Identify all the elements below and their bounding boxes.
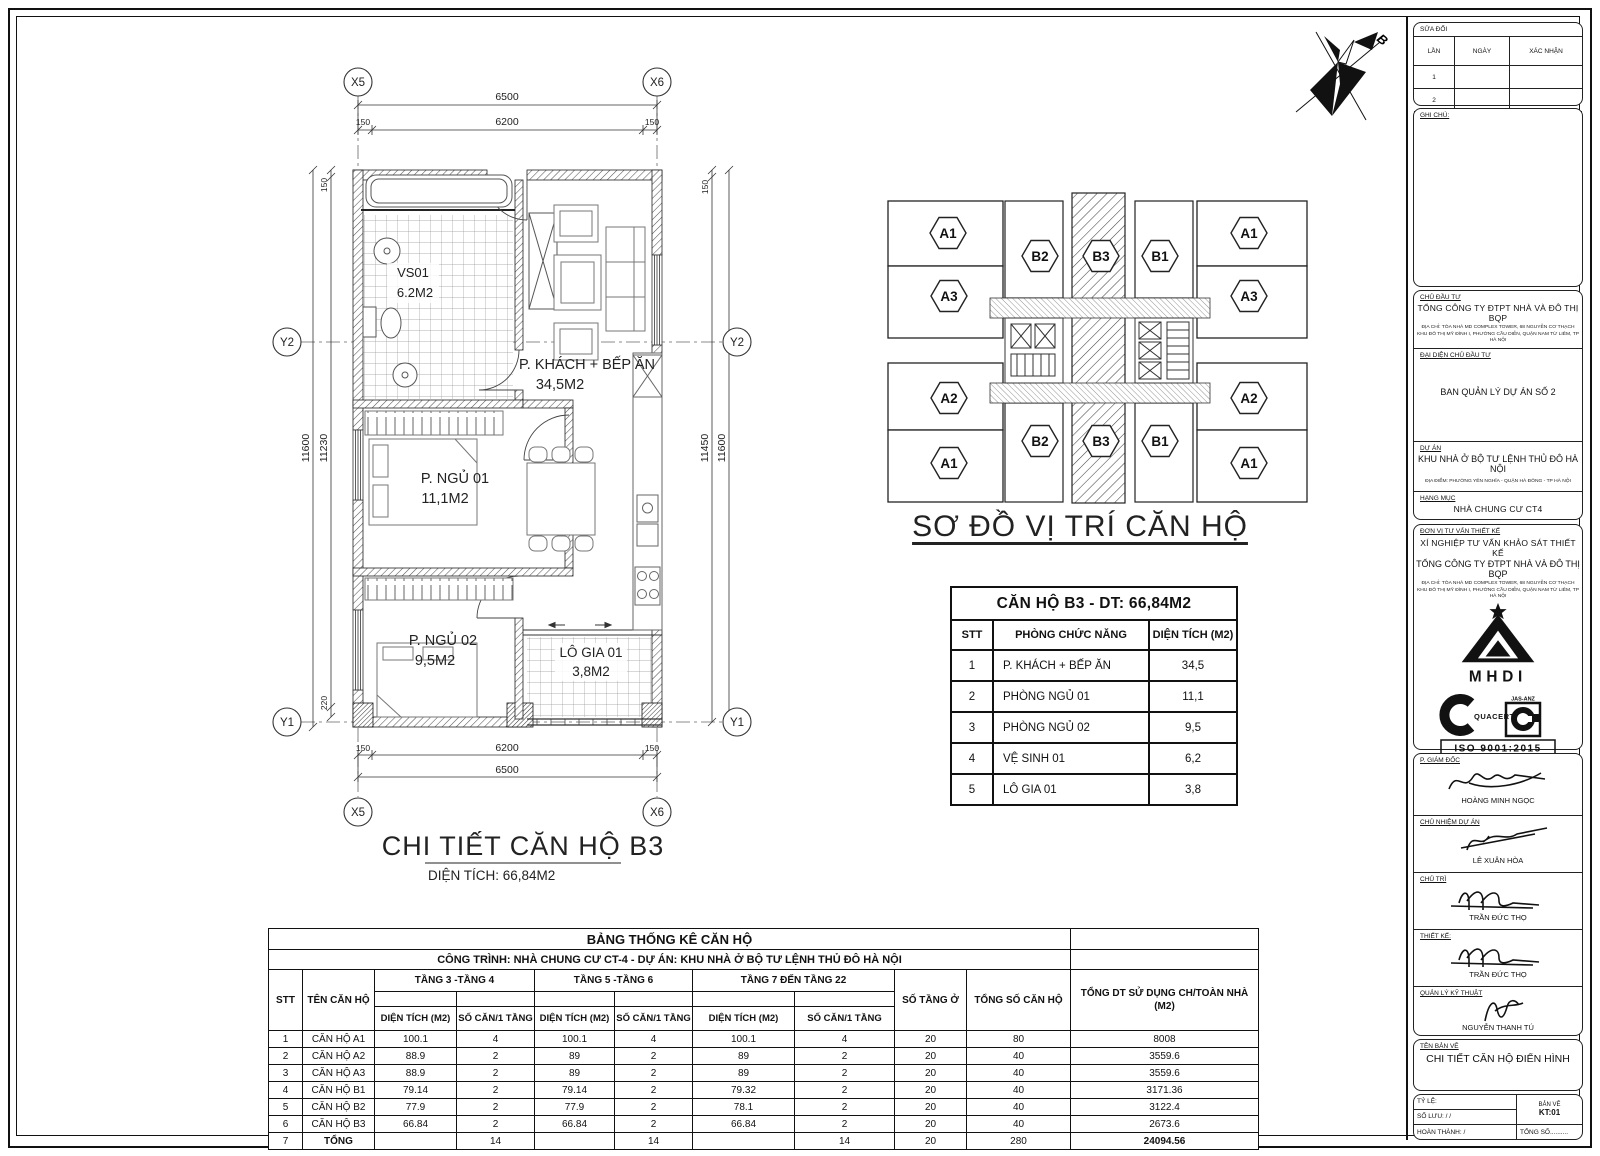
investor-address-2: KHU ĐÔ THỊ MỸ ĐÌNH I, PHƯỜNG CẦU DIỄN, Q… [1414, 332, 1582, 345]
room-area-bed1: 11,1M2 [421, 491, 468, 507]
group-floor-5-6: TẦNG 5 -TẦNG 6 [535, 970, 693, 992]
badge-b3-top: B3 [1092, 249, 1110, 264]
col-units-3: SỐ CĂN/1 TẦNG [795, 1007, 895, 1031]
spacer-cell [375, 992, 457, 1007]
designer-address-2: KHU ĐÔ THỊ MỸ ĐÌNH I, PHƯỜNG CẦU DIỄN, Q… [1414, 588, 1582, 601]
table-row: 5LÔ GIA 013,8 [951, 774, 1237, 805]
dim-bottom-right-150: 150 [645, 743, 659, 753]
item-section: HẠNG MỤC NHÀ CHUNG CƯ CT4 [1414, 492, 1582, 522]
designer-line2: TỔNG CÔNG TY ĐTPT NHÀ VÀ ĐÔ THỊ BQP [1414, 559, 1582, 579]
table-cell: 2 [457, 1048, 535, 1065]
table-cell: 2 [457, 1082, 535, 1099]
table-cell [375, 1133, 457, 1150]
table-cell: 5 [269, 1099, 303, 1116]
table-cell: 2 [795, 1082, 895, 1099]
table-cell: 9,5 [1149, 712, 1237, 743]
badge-a1-tl: A1 [939, 226, 957, 241]
project-name: KHU NHÀ Ở BỘ TƯ LỆNH THỦ ĐÔ HÀ NỘI [1414, 454, 1582, 474]
lead-label: CHỦ TRÌ [1414, 873, 1582, 883]
col-area-1: DIỆN TÍCH (M2) [375, 1007, 457, 1031]
table-cell: 89 [535, 1065, 615, 1082]
table-row: 2PHÒNG NGỦ 0111,1 [951, 681, 1237, 712]
north-arrow-icon: B [1288, 20, 1388, 128]
table-cell: CĂN HỘ A3 [303, 1065, 375, 1082]
table-cell: 80 [967, 1031, 1071, 1048]
table-cell: 3171.36 [1071, 1082, 1259, 1099]
table-cell: CĂN HỘ B3 [303, 1116, 375, 1133]
dim-bottom-left-150: 150 [356, 743, 370, 753]
unit-table-title: CĂN HỘ B3 - DT: 66,84M2 [951, 587, 1237, 620]
rev-row-1: 1 [1414, 66, 1455, 89]
drawing-name: CHI TIẾT CĂN HỘ ĐIỂN HÌNH [1414, 1053, 1582, 1065]
table-cell: P. KHÁCH + BẾP ĂN [993, 650, 1149, 681]
floor-plan-subtitle: DIỆN TÍCH: 66,84M2 [428, 868, 555, 883]
dim-left-outer: 11600 [300, 434, 312, 463]
badge-b3-bottom: B3 [1092, 434, 1110, 449]
signature-section-design: THIẾT KẾ: TRẦN ĐỨC THỌ [1414, 930, 1582, 987]
badge-b2-bottom: B2 [1031, 434, 1048, 449]
unit-col-area: DIỆN TÍCH (M2) [1149, 620, 1237, 650]
dim-top-inner: 6200 [495, 116, 519, 128]
dim-top-overall: 6500 [495, 91, 519, 103]
table-cell: 2 [615, 1082, 693, 1099]
project-section: DỰ ÁN KHU NHÀ Ở BỘ TƯ LỆNH THỦ ĐÔ HÀ NỘI… [1414, 442, 1582, 492]
table-cell: 2 [457, 1116, 535, 1133]
table-row: 4CĂN HỘ B179.14279.14279.32220403171.36 [269, 1082, 1259, 1099]
dining-set [527, 447, 595, 551]
table-row: 3PHÒNG NGỦ 029,5 [951, 712, 1237, 743]
room-label-bed1: P. NGỦ 01 [421, 469, 489, 487]
signature-mark [1443, 997, 1553, 1023]
dim-right-150: 150 [700, 180, 710, 194]
scale-label: TỶ LỆ: [1414, 1095, 1517, 1109]
rev-cell [1510, 66, 1583, 89]
signature-section-director: P. GIÁM ĐỐC HOÀNG MINH NGỌC [1414, 754, 1582, 816]
table-cell: 34,5 [1149, 650, 1237, 681]
table-cell: 280 [967, 1133, 1071, 1150]
revision-label: SỬA ĐỔI [1414, 23, 1582, 33]
complete-label: HOÀN THÀNH: / [1414, 1125, 1517, 1139]
table-row: 6CĂN HỘ B366.84266.84266.84220402673.6 [269, 1116, 1259, 1133]
table-cell: 20 [895, 1065, 967, 1082]
badge-a2-right: A2 [1240, 391, 1257, 406]
room-label-bed2: P. NGỦ 02 [409, 631, 477, 649]
rev-col-ngay: NGÀY [1455, 37, 1510, 66]
table-cell: 14 [457, 1133, 535, 1150]
table-cell: 24094.56 [1071, 1133, 1259, 1150]
table-cell: 40 [967, 1065, 1071, 1082]
room-label-living: P. KHÁCH + BẾP ĂN [519, 356, 655, 373]
table-cell: 2 [795, 1065, 895, 1082]
investor-address-1: ĐỊA CHỈ: TÒA NHÀ MD COMPLEX TOWER, 68 NG… [1414, 325, 1582, 332]
table-cell: 2 [951, 681, 993, 712]
table-cell: 2673.6 [1071, 1116, 1259, 1133]
table-cell: CĂN HỘ B1 [303, 1082, 375, 1099]
table-cell [535, 1133, 615, 1150]
table-cell: CĂN HỘ A2 [303, 1048, 375, 1065]
table-row: 7TỔNG1414142028024094.56 [269, 1133, 1259, 1150]
table-cell: 4 [457, 1031, 535, 1048]
table-cell: 8008 [1071, 1031, 1259, 1048]
project-address: ĐỊA ĐIỂM: PHƯỜNG YÊN NGHĨA - QUẬN HÀ ĐÔN… [1414, 479, 1582, 486]
table-cell: 2 [269, 1048, 303, 1065]
signature-section-qa: QUẢN LÝ KỸ THUẬT NGUYỄN THANH TÚ [1414, 987, 1582, 1037]
table-cell: PHÒNG NGỦ 02 [993, 712, 1149, 743]
investor-name: TỔNG CÔNG TY ĐTPT NHÀ VÀ ĐÔ THỊ BQP [1414, 303, 1582, 323]
bedroom1-furniture [365, 411, 503, 525]
table-cell: 2 [795, 1116, 895, 1133]
grid-x6-bottom: X6 [650, 807, 664, 819]
director-label: P. GIÁM ĐỐC [1414, 754, 1582, 764]
table-cell: 2 [615, 1048, 693, 1065]
table-cell: 3 [269, 1065, 303, 1082]
group-floor-7-22: TẦNG 7 ĐẾN TẦNG 22 [693, 970, 895, 992]
table-cell: 66.84 [535, 1116, 615, 1133]
table-cell: CĂN HỘ B2 [303, 1099, 375, 1116]
table-cell: 40 [967, 1048, 1071, 1065]
badge-a3-left: A3 [940, 289, 958, 304]
dim-top-right-150: 150 [645, 117, 659, 127]
signatures-box: P. GIÁM ĐỐC HOÀNG MINH NGỌC CHỦ NHIỆM DỰ… [1413, 753, 1583, 1036]
table-cell: 2 [615, 1065, 693, 1082]
badge-a1-bl: A1 [940, 456, 958, 471]
dim-bottom-inner: 6200 [495, 742, 519, 754]
table-cell: 100.1 [535, 1031, 615, 1048]
kitchen-counter [633, 353, 662, 630]
spacer-cell [535, 992, 615, 1007]
grid-y2-left: Y2 [280, 337, 294, 349]
investor-section: CHỦ ĐẦU TƯ TỔNG CÔNG TY ĐTPT NHÀ VÀ ĐÔ T… [1414, 291, 1582, 349]
drawing-name-label: TÊN BẢN VẼ [1414, 1040, 1582, 1050]
room-label-vs01: VS01 [397, 265, 429, 280]
table-cell: LÔ GIA 01 [993, 774, 1149, 805]
col-name: TÊN CĂN HỘ [303, 970, 375, 1031]
table-cell: 20 [895, 1031, 967, 1048]
room-label-loggia: LÔ GIA 01 [559, 645, 622, 660]
table-cell: 6,2 [1149, 743, 1237, 774]
signature-mark [1443, 764, 1553, 796]
table-cell: VỆ SINH 01 [993, 743, 1149, 774]
table-cell: CĂN HỘ A1 [303, 1031, 375, 1048]
director-name: HOÀNG MINH NGỌC [1414, 796, 1582, 805]
parties-box: CHỦ ĐẦU TƯ TỔNG CÔNG TY ĐTPT NHÀ VÀ ĐÔ T… [1413, 290, 1583, 520]
stats-subtitle-spacer [1071, 950, 1259, 970]
table-cell: 20 [895, 1099, 967, 1116]
table-cell: 4 [795, 1031, 895, 1048]
mhdi-logo-text: MHDI [1469, 668, 1527, 685]
table-cell: TỔNG [303, 1133, 375, 1150]
table-cell: 5 [951, 774, 993, 805]
designer-address-1: ĐỊA CHỈ: TÒA NHÀ MD COMPLEX TOWER, 68 NG… [1414, 581, 1582, 588]
col-total-units: TỔNG SỐ CĂN HỘ [967, 970, 1071, 1031]
col-total-area: TỔNG DT SỬ DỤNG CH/TOÀN NHÀ (M2) [1071, 970, 1259, 1031]
lead-name: TRẦN ĐỨC THỌ [1414, 913, 1582, 922]
mhdi-logo: MHDI [1414, 601, 1582, 694]
table-cell: 79.14 [535, 1082, 615, 1099]
table-row: 1P. KHÁCH + BẾP ĂN34,5 [951, 650, 1237, 681]
designer-box: ĐƠN VỊ TƯ VẤN THIẾT KẾ XÍ NGHIỆP TƯ VẤN … [1413, 524, 1583, 750]
rev-cell [1455, 66, 1510, 89]
table-cell: 2 [795, 1048, 895, 1065]
revision-box: SỬA ĐỔI LẦN NGÀY XÁC NHẬN 1 2 [1413, 22, 1583, 106]
qa-name: NGUYỄN THANH TÚ [1414, 1023, 1582, 1032]
col-area-2: DIỆN TÍCH (M2) [535, 1007, 615, 1031]
grid-y1-right: Y1 [730, 717, 744, 729]
rev-col-xacnhan: XÁC NHẬN [1510, 37, 1583, 66]
stats-title: BẢNG THỐNG KÊ CĂN HỘ [269, 929, 1071, 950]
table-row: 1CĂN HỘ A1100.14100.14100.1420808008 [269, 1031, 1259, 1048]
grid-x5-bottom: X5 [351, 807, 365, 819]
table-cell: 2 [615, 1116, 693, 1133]
dim-top-left-150: 150 [356, 117, 370, 127]
pm-name: LÊ XUÂN HÒA [1414, 856, 1582, 865]
grid-y2-right: Y2 [730, 337, 744, 349]
table-cell: 1 [951, 650, 993, 681]
room-area-vs01: 6.2M2 [397, 285, 433, 300]
table-cell: 40 [967, 1099, 1071, 1116]
quacert-text: QUACERT [1474, 712, 1515, 721]
notes-box: GHI CHÚ: [1413, 108, 1583, 287]
table-cell: 7 [269, 1133, 303, 1150]
representative-name: BAN QUẢN LÝ DỰ ÁN SỐ 2 [1414, 387, 1582, 397]
table-cell: 20 [895, 1133, 967, 1150]
representative-label: ĐẠI DIỆN CHỦ ĐẦU TƯ [1414, 349, 1582, 359]
table-cell: 78.1 [693, 1099, 795, 1116]
sheet-number: KT:01 [1520, 1108, 1579, 1117]
designer-label: ĐƠN VỊ TƯ VẤN THIẾT KẾ [1414, 525, 1582, 535]
hall-closet [529, 213, 557, 309]
pm-label: CHỦ NHIỆM DỰ ÁN [1414, 816, 1582, 826]
table-cell: PHÒNG NGỦ 01 [993, 681, 1149, 712]
signature-mark [1443, 826, 1553, 856]
drawing-sheet: B [0, 0, 1600, 1156]
stats-table: BẢNG THỐNG KÊ CĂN HỘ CÔNG TRÌNH: NHÀ CHU… [268, 928, 1259, 1150]
table-cell: 3559.6 [1071, 1048, 1259, 1065]
badge-b2-top: B2 [1031, 249, 1048, 264]
unit-area-table: CĂN HỘ B3 - DT: 66,84M2 STT PHÒNG CHỨC N… [950, 586, 1238, 806]
col-total-area-line1: TỔNG DT SỬ DỤNG CH/TOÀN NHÀ [1081, 988, 1249, 999]
item-name: NHÀ CHUNG CƯ CT4 [1414, 504, 1582, 514]
table-cell: 2 [457, 1065, 535, 1082]
grid-x5-top: X5 [351, 77, 365, 89]
key-plan: A1 B2 B3 B1 A1 A3 A3 A2 A2 A1 B2 B3 B1 A… [855, 158, 1313, 510]
table-cell [693, 1133, 795, 1150]
title-block: SỬA ĐỔI LẦN NGÀY XÁC NHẬN 1 2 GHI CHÚ: C… [1406, 16, 1590, 1140]
unit-table-body: 1P. KHÁCH + BẾP ĂN34,52PHÒNG NGỦ 0111,13… [951, 650, 1237, 805]
group-floor-3-4: TẦNG 3 -TẦNG 4 [375, 970, 535, 992]
table-row: 4VỆ SINH 016,2 [951, 743, 1237, 774]
floor-plan-title: CHI TIẾT CĂN HỘ B3 [382, 830, 665, 861]
revision-table: LẦN NGÀY XÁC NHẬN 1 2 [1414, 36, 1582, 112]
floor-plan: VS01 6.2M2 P. KHÁCH + BẾP ĂN 34,5M2 P. N… [265, 55, 775, 887]
dim-left-220: 220 [319, 696, 329, 710]
grid-x6-top: X6 [650, 77, 664, 89]
col-area-3: DIỆN TÍCH (M2) [693, 1007, 795, 1031]
stats-title-spacer [1071, 929, 1259, 950]
col-units-2: SỐ CĂN/1 TẦNG [615, 1007, 693, 1031]
badge-b1-top: B1 [1151, 249, 1169, 264]
col-stt: STT [269, 970, 303, 1031]
stats-subtitle: CÔNG TRÌNH: NHÀ CHUNG CƯ CT-4 - DỰ ÁN: K… [269, 950, 1071, 970]
file-label: SỐ LƯU: / / [1414, 1109, 1517, 1124]
col-total-area-line2: (M2) [1154, 1001, 1175, 1012]
dim-right-outer: 11600 [716, 434, 728, 463]
table-cell: 89 [693, 1048, 795, 1065]
table-cell: 100.1 [375, 1031, 457, 1048]
design-name: TRẦN ĐỨC THỌ [1414, 970, 1582, 979]
total-sheets-label: TỔNG SỐ.......... [1517, 1125, 1583, 1139]
table-cell: 40 [967, 1082, 1071, 1099]
table-cell: 3122.4 [1071, 1099, 1259, 1116]
unit-col-room: PHÒNG CHỨC NĂNG [993, 620, 1149, 650]
table-cell: 4 [269, 1082, 303, 1099]
table-cell: 4 [615, 1031, 693, 1048]
table-cell: 11,1 [1149, 681, 1237, 712]
table-cell: 6 [269, 1116, 303, 1133]
table-cell: 88.9 [375, 1065, 457, 1082]
table-cell: 1 [269, 1031, 303, 1048]
project-label: DỰ ÁN [1414, 442, 1582, 452]
unit-col-stt: STT [951, 620, 993, 650]
table-cell: 3 [951, 712, 993, 743]
table-cell: 2 [457, 1099, 535, 1116]
table-cell: 20 [895, 1048, 967, 1065]
spacer-cell [795, 992, 895, 1007]
dim-right-inner: 11450 [699, 434, 711, 463]
quacert-logo: QUACERT JAS-ANZ ISO 9001:2015 [1414, 694, 1582, 761]
table-row: 3CĂN HỘ A388.9289289220403559.6 [269, 1065, 1259, 1082]
table-cell: 3559.6 [1071, 1065, 1259, 1082]
table-cell: 2 [795, 1099, 895, 1116]
signature-mark [1443, 883, 1553, 913]
table-cell: 100.1 [693, 1031, 795, 1048]
badge-a1-br: A1 [1240, 456, 1258, 471]
table-cell: 79.32 [693, 1082, 795, 1099]
jas-anz-text: JAS-ANZ [1511, 696, 1535, 702]
item-label: HẠNG MỤC [1414, 492, 1582, 502]
representative-section: ĐẠI DIỆN CHỦ ĐẦU TƯ BAN QUẢN LÝ DỰ ÁN SỐ… [1414, 349, 1582, 442]
dim-bottom-overall: 6500 [495, 764, 519, 776]
grid-y1-left: Y1 [280, 717, 294, 729]
signature-section-pm: CHỦ NHIỆM DỰ ÁN LÊ XUÂN HÒA [1414, 816, 1582, 873]
investor-label: CHỦ ĐẦU TƯ [1414, 291, 1582, 301]
col-units-1: SỐ CĂN/1 TẦNG [457, 1007, 535, 1031]
table-cell: 89 [693, 1065, 795, 1082]
signature-mark [1443, 940, 1553, 970]
qa-label: QUẢN LÝ KỸ THUẬT [1414, 987, 1582, 997]
room-area-loggia: 3,8M2 [572, 664, 610, 679]
table-cell: 77.9 [375, 1099, 457, 1116]
table-cell: 14 [795, 1133, 895, 1150]
badge-b1-bottom: B1 [1151, 434, 1169, 449]
table-cell: 20 [895, 1082, 967, 1099]
table-cell: 20 [895, 1116, 967, 1133]
key-plan-title: SƠ ĐỒ VỊ TRÍ CĂN HỘ [860, 510, 1300, 544]
living-room-furniture [554, 205, 645, 360]
spacer-cell [615, 992, 693, 1007]
notes-label: GHI CHÚ: [1414, 109, 1582, 119]
table-cell: 77.9 [535, 1099, 615, 1116]
dim-left-inner: 11230 [318, 434, 330, 463]
table-row: 5CĂN HỘ B277.9277.9278.1220403122.4 [269, 1099, 1259, 1116]
badge-a2-left: A2 [940, 391, 957, 406]
room-area-bed2: 9,5M2 [415, 653, 455, 669]
table-cell: 89 [535, 1048, 615, 1065]
dim-left-150: 150 [319, 178, 329, 192]
table-cell: 79.14 [375, 1082, 457, 1099]
table-cell: 40 [967, 1116, 1071, 1133]
info-grid: TỶ LỆ: BẢN VẼ KT:01 SỐ LƯU: / / HOÀN THÀ… [1413, 1094, 1583, 1140]
drawing-name-box: TÊN BẢN VẼ CHI TIẾT CĂN HỘ ĐIỂN HÌNH [1413, 1039, 1583, 1091]
spacer-cell [693, 992, 795, 1007]
signature-section-lead: CHỦ TRÌ TRẦN ĐỨC THỌ [1414, 873, 1582, 930]
table-cell: 3,8 [1149, 774, 1237, 805]
table-row: 2CĂN HỘ A288.9289289220403559.6 [269, 1048, 1259, 1065]
table-cell: 66.84 [375, 1116, 457, 1133]
table-cell: 2 [615, 1099, 693, 1116]
sheet-cell: BẢN VẼ KT:01 [1517, 1095, 1583, 1125]
badge-a1-tr: A1 [1240, 226, 1258, 241]
designer-line1: XÍ NGHIỆP TƯ VẤN KHẢO SÁT THIẾT KẾ [1414, 538, 1582, 558]
table-cell: 88.9 [375, 1048, 457, 1065]
room-area-living: 34,5M2 [536, 377, 584, 393]
table-cell: 14 [615, 1133, 693, 1150]
table-cell: 4 [951, 743, 993, 774]
table-cell: 66.84 [693, 1116, 795, 1133]
spacer-cell [457, 992, 535, 1007]
badge-a3-right: A3 [1240, 289, 1258, 304]
stats-table-body: 1CĂN HỘ A1100.14100.14100.14208080082CĂN… [269, 1031, 1259, 1150]
design-label: THIẾT KẾ: [1414, 930, 1582, 940]
col-floors: SỐ TẦNG Ở [895, 970, 967, 1031]
rev-col-lan: LẦN [1414, 37, 1455, 66]
